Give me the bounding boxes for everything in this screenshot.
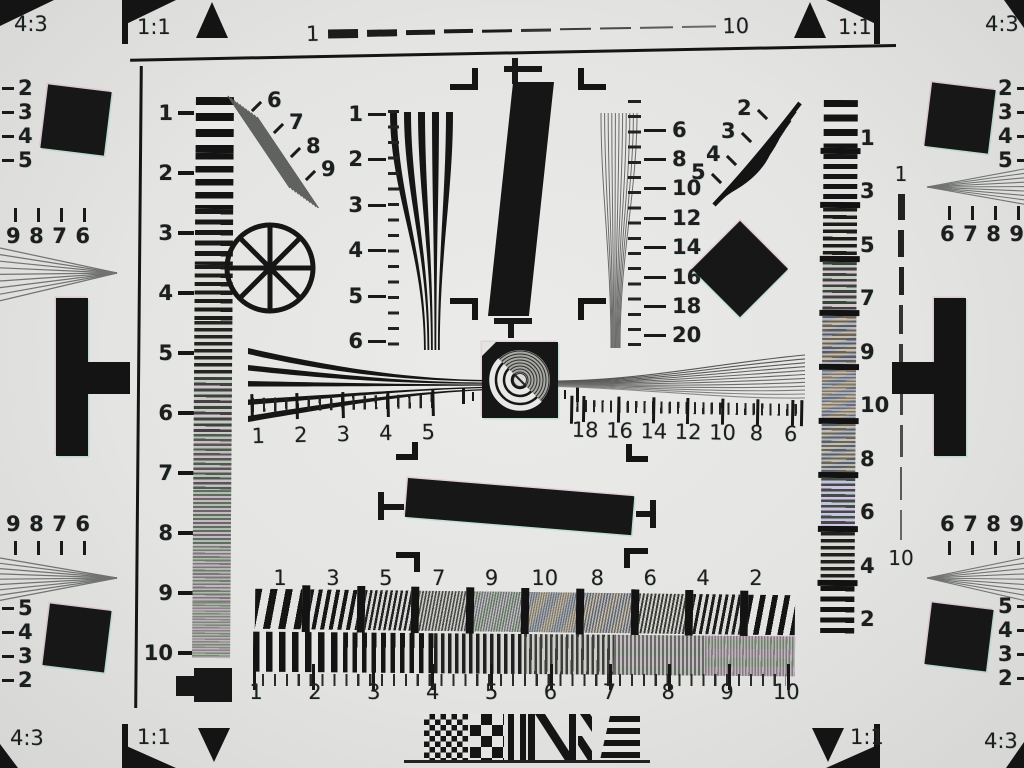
left-bottom-digit-row: 9876 [6,514,90,535]
major-ticks [250,390,435,420]
left-border-line [134,66,143,708]
right-dash-scale-end: 10 [888,548,913,568]
scale-tick [644,129,666,132]
leader-dash [1017,653,1024,656]
scale-tick [644,187,666,190]
scale-tick [178,411,194,415]
leader-dash [1017,605,1024,608]
scale-row: 3 [144,223,194,243]
left-edge-top-hyperbola-numbers: 2345 [2,78,38,170]
left-wedge-scale: 12345678910 [144,103,194,663]
iso12233-resolution-chart: 1 10 1 10 4:3 1:1 1:1 4:3 4:3 1:1 1:1 4:… [0,0,1024,768]
hyperbola-number-row: 2 [2,78,38,98]
hyperbola-number-row: 5 [2,150,38,170]
scale-row: 5 [340,286,386,306]
center-vertical-bar [488,82,554,316]
square-label-tr: 1:1 [838,17,872,38]
upper-left-diagonal-fan [224,90,346,208]
center-target [482,342,558,418]
left-top-digit-row: 9876 [6,226,90,247]
hyperbola-number-row: 2 [998,78,1024,98]
scale-tick [178,171,194,175]
top-dash-scale: 1 10 [306,12,736,48]
leader-dash [1017,135,1024,138]
aspect-label-bl: 4:3 [10,728,44,749]
scale-tick [644,276,666,279]
down-triangle-marker-bl [198,728,230,762]
scale-tick [178,471,194,475]
tmark-right-stem [636,511,652,517]
leader-dash [2,655,14,658]
square-label-br: 1:1 [850,727,884,748]
scale-tick [644,246,666,249]
right-resolution-wedge-strip [820,100,858,640]
down-triangle-marker-br [812,728,844,762]
right-bottom-black-square [924,602,993,671]
scale-row: 3 [340,195,386,215]
leader-dash [1017,629,1024,632]
upper-right-curved-fan [690,83,808,215]
right-edge-bottom-hyperbola-numbers: 5432 [998,596,1024,688]
scale-tick [644,334,666,337]
aspect-label-tr: 4:3 [985,14,1019,35]
bottom-fine-scale: 12345678910 [243,682,799,703]
square-label-bl: 1:1 [137,727,171,748]
leader-dash [2,87,14,90]
horizontal-bars-block [594,716,640,760]
bottom-pattern-underline [404,760,650,763]
scale-row: 20 [644,326,704,346]
registration-bracket-tr [578,68,606,90]
vertical-bars-block [508,714,526,762]
left-top-tick-row [14,208,86,222]
right-edge-top-hyperbola-numbers: 2345 [998,78,1024,170]
scale-row: 6 [144,403,194,423]
leader-dash [2,631,14,634]
hyperbola-number-row: 3 [2,102,38,122]
scale-tick [178,291,194,295]
coarse-checkerboard-block [470,714,504,762]
right-top-black-square [924,82,995,153]
registration-bracket-low-right [624,548,648,568]
fine-checkerboard-block [424,714,468,762]
scale-row: 14 [644,238,704,258]
registration-tmark-top-bar [504,66,542,72]
registration-bracket-mid-right [626,444,648,462]
hyperbola-number-row: 3 [998,102,1024,122]
left-t-shape-stem [88,362,130,394]
scale-tick [368,295,386,298]
leader-dash [2,135,14,138]
scale-tick [178,231,194,235]
scale-tick [178,111,194,115]
right-dash-scale-start: 1 [895,164,908,184]
hyperbola-number-row: 3 [998,644,1024,664]
registration-bracket-tl [450,68,478,90]
scale-tick [368,113,386,116]
diagonal-n-block [528,714,592,762]
center-right-minor-ticks [628,100,641,348]
hyperbola-number-row: 4 [998,620,1024,640]
center-left-vertical-scale: 123456 [340,104,386,352]
hyperbola-number-row: 5 [998,150,1024,170]
scale-tick [368,249,386,252]
right-bottom-digit-row: 6789 [940,514,1024,535]
registration-tmark-bottom-stem [508,318,514,338]
registration-bracket-bl [450,298,478,320]
scale-row: 4 [144,283,194,303]
hyperbola-number-row: 5 [998,596,1024,616]
square-label-tl: 1:1 [137,17,171,38]
right-top-digit-row: 6789 [940,224,1024,245]
leader-dash [2,607,14,610]
scale-tick [178,351,194,355]
left-wedge-end-step [176,676,196,696]
right-t-shape-stem [892,362,934,394]
spoked-wheel [222,220,318,316]
scale-tick [368,158,386,161]
aspect-label-br: 4:3 [984,731,1018,752]
top-dash-scale-end: 10 [722,15,749,36]
leader-dash [1017,111,1024,114]
left-top-black-square [40,84,111,155]
hyperbola-number-row: 3 [2,646,38,666]
leader-dash [1017,159,1024,162]
aspect-label-tl: 4:3 [14,14,48,35]
scale-tick [644,158,666,161]
bottom-coarse-strip [255,589,795,636]
right-top-hyperbola-fan [926,168,1024,208]
right-horizontal-ruler: 181614121086 [566,396,813,447]
leader-dash [2,111,14,114]
hyperbola-number-row: 4 [998,126,1024,146]
leader-dash [1017,677,1024,680]
left-edge-bottom-hyperbola-numbers: 5432 [2,598,38,690]
hyperbola-number-row: 4 [2,126,38,146]
bottom-coarse-scale: 13579108642 [267,568,769,589]
top-dash-scale-start: 1 [306,23,320,44]
left-bottom-black-square [42,603,111,672]
hyperbola-number-row: 4 [2,622,38,642]
hyperbola-number-row: 5 [2,598,38,618]
hyperbola-number-row: 2 [2,670,38,690]
right-horizontal-scale: 181614121086 [572,420,804,445]
ruler-end-tick [800,400,803,426]
left-bottom-tick-row [14,541,86,555]
tmark-left-stem [384,504,404,510]
scale-tick [368,204,386,207]
middle-horizontal-bar [405,478,634,535]
leader-dash [1017,87,1024,90]
up-triangle-marker-tr [794,2,826,38]
scale-tick [178,531,194,535]
right-top-tick-row [948,206,1020,220]
scale-row: 5 [144,343,194,363]
leader-dash [2,159,14,162]
right-wedge-scale: 13579108642 [860,128,890,630]
scale-tick [644,217,666,220]
diamond-square [692,221,788,317]
scale-row: 2 [144,163,194,183]
scale-row: 9 [144,583,194,603]
right-t-shape-crossbar [934,298,966,456]
left-t-shape-crossbar [56,298,88,456]
left-wedge-end-block [194,668,232,702]
scale-row: 2 [340,150,386,170]
scale-row: 10 [144,643,194,663]
left-top-hyperbola-fan [0,246,118,304]
leader-dash [2,679,14,682]
hyperbola-number-row: 2 [998,668,1024,688]
scale-row: 8 [144,523,194,543]
registration-bracket-mid-left [396,442,418,460]
registration-tmark-top-stem [512,58,518,84]
scale-row: 18 [644,297,704,317]
right-bottom-tick-row [948,541,1020,555]
scale-tick [644,305,666,308]
up-triangle-marker-tl [196,2,228,38]
scale-row: 1 [144,103,194,123]
scale-row: 1 [340,104,386,124]
scale-row: 4 [340,241,386,261]
center-left-minor-ticks [388,110,399,348]
scale-row: 7 [144,463,194,483]
